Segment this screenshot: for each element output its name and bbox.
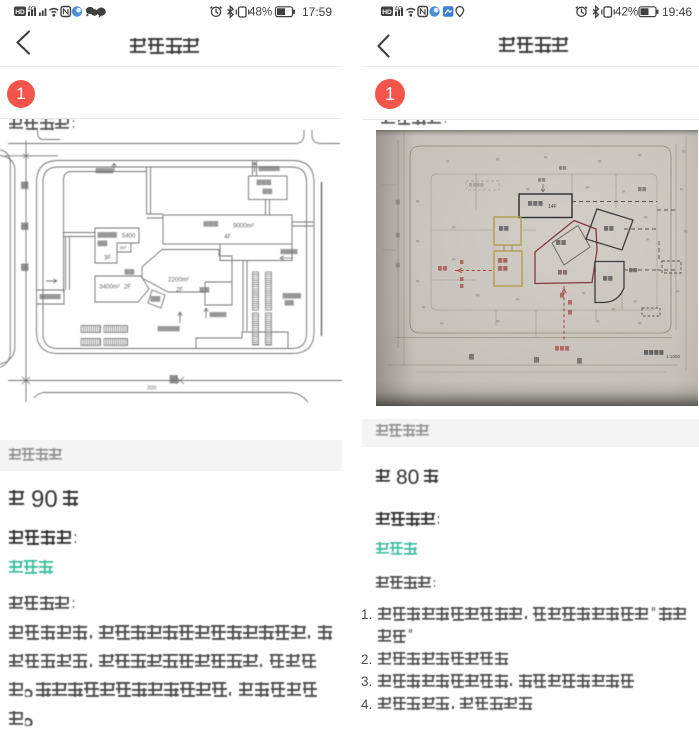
svg-text:m²: m² (120, 246, 126, 252)
svg-text:17:59: 17:59 (302, 5, 332, 19)
svg-text:9000m²: 9000m² (233, 223, 254, 230)
svg-text:2F: 2F (176, 288, 183, 294)
svg-text:19:46: 19:46 (662, 5, 692, 19)
svg-text:48%: 48% (249, 6, 272, 19)
svg-text:4F: 4F (224, 235, 231, 241)
svg-text:14F: 14F (548, 204, 557, 210)
svg-text:1:1000: 1:1000 (666, 354, 680, 359)
svg-text:2200m²: 2200m² (168, 277, 189, 284)
svg-text:HD: HD (15, 9, 25, 16)
svg-text:3F: 3F (104, 256, 111, 262)
svg-text:3400m²: 3400m² (99, 284, 120, 291)
svg-text:2F: 2F (124, 285, 131, 291)
svg-text:42%: 42% (615, 6, 638, 19)
svg-text:5400: 5400 (122, 234, 136, 240)
svg-text:300: 300 (147, 386, 156, 392)
svg-text:HD: HD (382, 9, 392, 16)
